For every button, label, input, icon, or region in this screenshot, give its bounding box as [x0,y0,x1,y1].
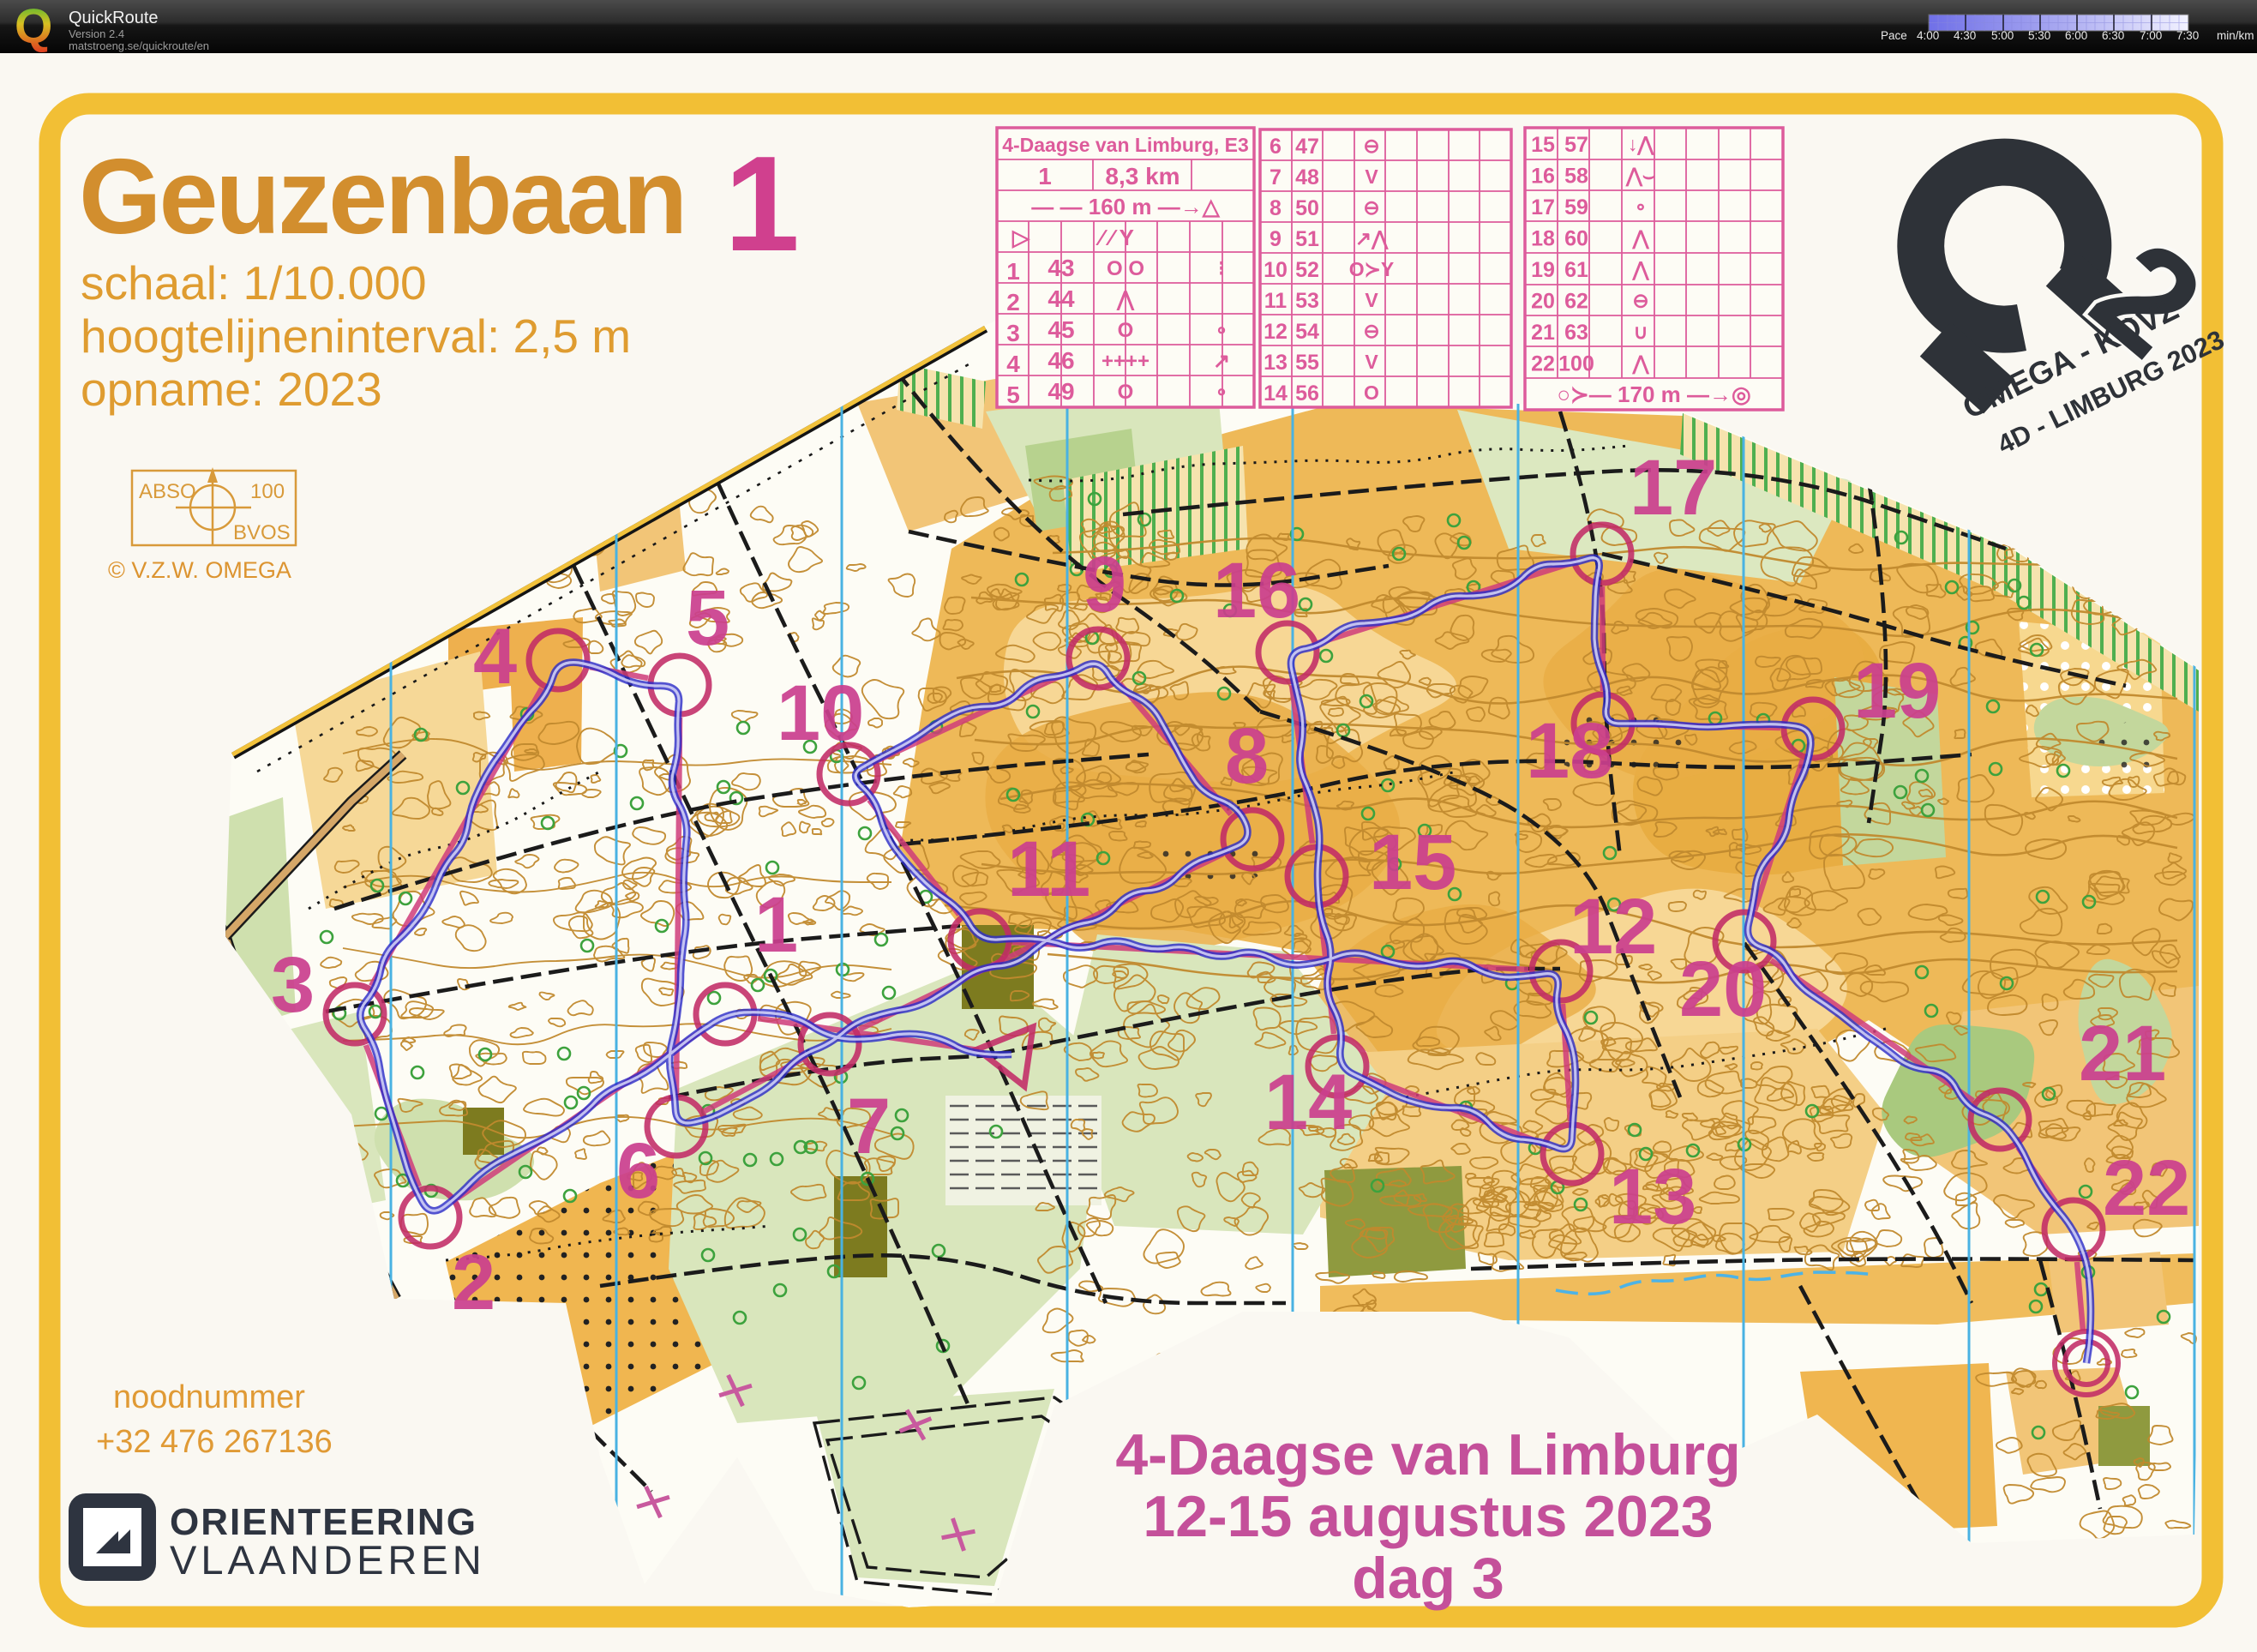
svg-text:61: 61 [1564,258,1588,282]
svg-text:56: 56 [1295,381,1319,405]
svg-text:4:30: 4:30 [1954,29,1976,42]
svg-text:60: 60 [1564,227,1588,251]
svg-text:Geuzenbaan: Geuzenbaan [79,138,685,256]
svg-text:12: 12 [1570,883,1657,970]
svg-text:© V.Z.W. OMEGA: © V.Z.W. OMEGA [108,557,291,583]
svg-text:6: 6 [1270,135,1282,159]
svg-text:⊖: ⊖ [1363,196,1379,219]
svg-text:O: O [1118,319,1134,342]
svg-text:45: 45 [1047,316,1074,343]
svg-text:8,3 km: 8,3 km [1105,163,1180,189]
svg-text:57: 57 [1564,133,1588,157]
svg-text:∘: ∘ [1215,381,1228,404]
svg-text:dag 3: dag 3 [1352,1546,1504,1611]
svg-text:4-Daagse van Limburg, E3: 4-Daagse van Limburg, E3 [1002,134,1249,156]
svg-text:22: 22 [2103,1144,2190,1232]
svg-text:9: 9 [1083,541,1126,628]
svg-text:⋀: ⋀ [1632,258,1650,280]
svg-text:7: 7 [1270,165,1282,189]
svg-text:QuickRoute: QuickRoute [69,9,159,27]
svg-text:6:30: 6:30 [2102,29,2124,42]
svg-text:55: 55 [1295,351,1319,375]
svg-text:5:30: 5:30 [2028,29,2050,42]
svg-text:1: 1 [754,881,798,969]
svg-text:20: 20 [1679,946,1767,1033]
svg-text:13: 13 [1609,1153,1696,1241]
svg-text:11: 11 [1007,826,1090,913]
svg-text:opname: 2023: opname: 2023 [81,363,382,416]
svg-text:17: 17 [1630,444,1717,532]
svg-text:Pace: Pace [1881,29,1907,42]
svg-text:▷: ▷ [1011,225,1030,250]
svg-text:62: 62 [1564,290,1588,314]
svg-text:21: 21 [1531,321,1555,345]
svg-text:19: 19 [1853,647,1941,735]
svg-text:50: 50 [1295,196,1319,220]
svg-text:59: 59 [1564,195,1588,219]
svg-text:Q: Q [15,0,52,54]
svg-text:12: 12 [1264,320,1288,344]
svg-text:5: 5 [1006,381,1020,408]
svg-text:∪: ∪ [1634,321,1648,343]
svg-text:matstroeng.se/quickroute/en: matstroeng.se/quickroute/en [69,39,209,52]
svg-text:↗⋀: ↗⋀ [1355,227,1389,249]
svg-text:1: 1 [1006,258,1020,285]
svg-text:schaal: 1/10.000: schaal: 1/10.000 [81,256,427,309]
svg-text:47: 47 [1295,135,1319,159]
svg-text:6: 6 [616,1127,660,1215]
svg-text:43: 43 [1047,255,1074,281]
svg-text:⋀⌣: ⋀⌣ [1625,165,1655,187]
svg-text:100: 100 [1558,352,1594,376]
svg-text:7: 7 [847,1083,891,1170]
svg-text:18: 18 [1531,227,1555,251]
svg-text:3: 3 [271,941,315,1029]
svg-text:5: 5 [686,574,729,662]
svg-text:1: 1 [724,129,800,279]
svg-text:⋀: ⋀ [1116,288,1135,311]
svg-text:11: 11 [1264,289,1288,313]
svg-text:V: V [1365,351,1378,373]
svg-text:∕ ∕ Y: ∕ ∕ Y [1095,225,1134,250]
svg-text:100: 100 [250,480,285,503]
svg-text:16: 16 [1531,165,1555,189]
svg-text:7:00: 7:00 [2140,29,2162,42]
svg-text:VLAANDEREN: VLAANDEREN [170,1537,486,1583]
svg-text:∘: ∘ [1635,195,1647,218]
svg-text:4: 4 [473,613,517,700]
svg-text:+32 476 267136: +32 476 267136 [96,1424,333,1460]
svg-text:17: 17 [1531,195,1555,219]
svg-text:7:30: 7:30 [2176,29,2199,42]
svg-text:20: 20 [1531,290,1555,314]
svg-text:hoogtelijneninterval: 2,5 m: hoogtelijneninterval: 2,5 m [81,309,631,363]
svg-text:54: 54 [1295,320,1319,344]
svg-text:9: 9 [1270,227,1282,251]
svg-text:8: 8 [1270,196,1282,220]
svg-text:O≻Y: O≻Y [1349,258,1395,280]
svg-text:BVOS: BVOS [233,521,291,544]
svg-text:ABSO: ABSO [139,480,196,503]
svg-text:15: 15 [1531,133,1555,157]
svg-text:14: 14 [1264,1059,1352,1146]
svg-text:48: 48 [1295,165,1319,189]
svg-text:↓⋀: ↓⋀ [1628,133,1655,155]
svg-text:V: V [1365,289,1378,311]
svg-text:O: O [1118,381,1134,404]
svg-text:6:00: 6:00 [2065,29,2087,42]
svg-text:2: 2 [1006,289,1020,315]
svg-text:52: 52 [1295,258,1319,282]
svg-text:⁝: ⁝ [1218,257,1225,280]
svg-text:10: 10 [777,670,864,757]
svg-text:49: 49 [1047,378,1074,405]
svg-text:3: 3 [1006,320,1020,346]
svg-text:O: O [1364,381,1379,404]
svg-text:21: 21 [2079,1010,2166,1097]
svg-text:⋀: ⋀ [1632,227,1650,249]
svg-text:51: 51 [1295,227,1319,251]
svg-text:46: 46 [1047,347,1074,374]
svg-text:19: 19 [1531,258,1555,282]
svg-text:58: 58 [1564,165,1588,189]
svg-text:4-Daagse van Limburg: 4-Daagse van Limburg [1115,1422,1740,1487]
svg-text:16: 16 [1213,547,1300,634]
svg-text:⊖: ⊖ [1363,320,1379,342]
svg-text:63: 63 [1564,321,1588,345]
svg-text:15: 15 [1369,819,1456,906]
svg-text:4: 4 [1006,351,1020,377]
svg-text:8: 8 [1225,712,1269,800]
svg-text:∘: ∘ [1215,319,1228,342]
svg-text:Version 2.4: Version 2.4 [69,27,124,40]
svg-text:⋀: ⋀ [1632,352,1650,375]
svg-text:22: 22 [1531,352,1555,376]
svg-text:18: 18 [1526,707,1613,795]
svg-text:14: 14 [1264,381,1288,405]
svg-text:○≻— 170 m —→◎: ○≻— 170 m —→◎ [1557,381,1750,407]
svg-text:— — 160 m —→△: — — 160 m —→△ [1031,194,1220,219]
svg-text:13: 13 [1264,351,1288,375]
svg-text:O O: O O [1107,257,1144,280]
svg-text:++++: ++++ [1101,350,1150,373]
svg-text:10: 10 [1264,258,1288,282]
svg-text:min/km: min/km [2217,29,2254,42]
svg-text:1: 1 [1038,163,1052,189]
svg-text:2: 2 [452,1239,495,1326]
svg-text:44: 44 [1047,285,1075,312]
svg-text:4:00: 4:00 [1917,29,1939,42]
svg-text:12-15 augustus 2023: 12-15 augustus 2023 [1143,1484,1713,1549]
svg-text:⊖: ⊖ [1363,135,1379,157]
svg-text:↗: ↗ [1213,350,1230,373]
svg-text:noodnummer: noodnummer [113,1379,305,1415]
svg-text:V: V [1365,165,1378,188]
svg-text:5:00: 5:00 [1991,29,2014,42]
svg-text:53: 53 [1295,289,1319,313]
svg-text:⊖: ⊖ [1632,290,1648,312]
